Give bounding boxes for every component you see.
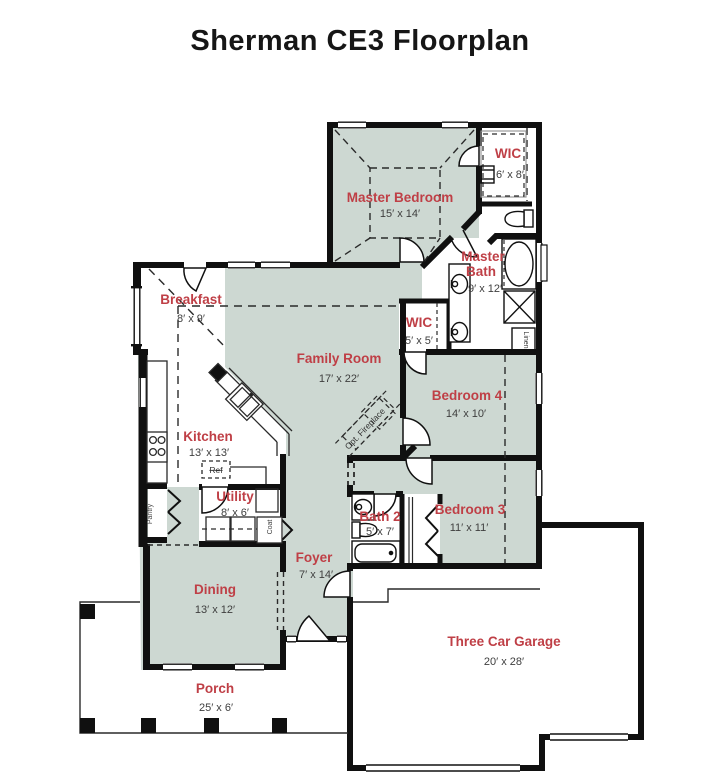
svg-text:WIC: WIC (406, 315, 432, 330)
svg-text:Bedroom 4: Bedroom 4 (432, 388, 503, 403)
svg-text:13′ x 13′: 13′ x 13′ (189, 447, 229, 459)
svg-text:8′ x 6′: 8′ x 6′ (221, 507, 249, 519)
svg-text:14′ x 10′: 14′ x 10′ (446, 408, 486, 420)
svg-text:Sherman CE3 Floorplan: Sherman CE3 Floorplan (190, 25, 529, 57)
svg-text:11′ x 11′: 11′ x 11′ (450, 522, 489, 534)
svg-text:17′ x 22′: 17′ x 22′ (319, 373, 359, 385)
svg-text:WIC: WIC (495, 146, 521, 161)
svg-text:6′ x 8′: 6′ x 8′ (496, 169, 524, 181)
svg-text:Bath: Bath (466, 264, 496, 279)
svg-text:5′ x 7′: 5′ x 7′ (366, 526, 394, 538)
svg-text:Master Bedroom: Master Bedroom (347, 190, 454, 205)
svg-text:Utility: Utility (216, 489, 254, 504)
svg-text:Master: Master (461, 249, 505, 264)
svg-text:Bedroom 3: Bedroom 3 (435, 502, 506, 517)
svg-text:Family Room: Family Room (297, 351, 382, 366)
svg-text:Coat: Coat (267, 520, 274, 535)
svg-text:Bath 2: Bath 2 (359, 509, 400, 524)
svg-text:13′ x 12′: 13′ x 12′ (195, 604, 235, 616)
svg-text:9′ x 12′: 9′ x 12′ (468, 283, 502, 295)
svg-text:Kitchen: Kitchen (183, 429, 233, 444)
svg-text:20′ x 28′: 20′ x 28′ (484, 656, 524, 668)
svg-text:7′ x 14′: 7′ x 14′ (299, 569, 333, 581)
svg-text:15′ x 14′: 15′ x 14′ (380, 208, 420, 220)
svg-text:25′ x 6′: 25′ x 6′ (199, 702, 233, 714)
svg-text:Three Car Garage: Three Car Garage (447, 634, 561, 649)
svg-text:Foyer: Foyer (296, 550, 334, 565)
svg-text:8′ x 9′: 8′ x 9′ (177, 313, 205, 325)
svg-text:Pantry: Pantry (147, 503, 154, 524)
svg-text:Dining: Dining (194, 582, 236, 597)
svg-text:Porch: Porch (196, 681, 234, 696)
svg-text:Breakfast: Breakfast (160, 292, 222, 307)
svg-text:Ref: Ref (209, 465, 223, 475)
svg-text:5′ x 5′: 5′ x 5′ (405, 335, 433, 347)
svg-text:Linen: Linen (522, 331, 529, 348)
